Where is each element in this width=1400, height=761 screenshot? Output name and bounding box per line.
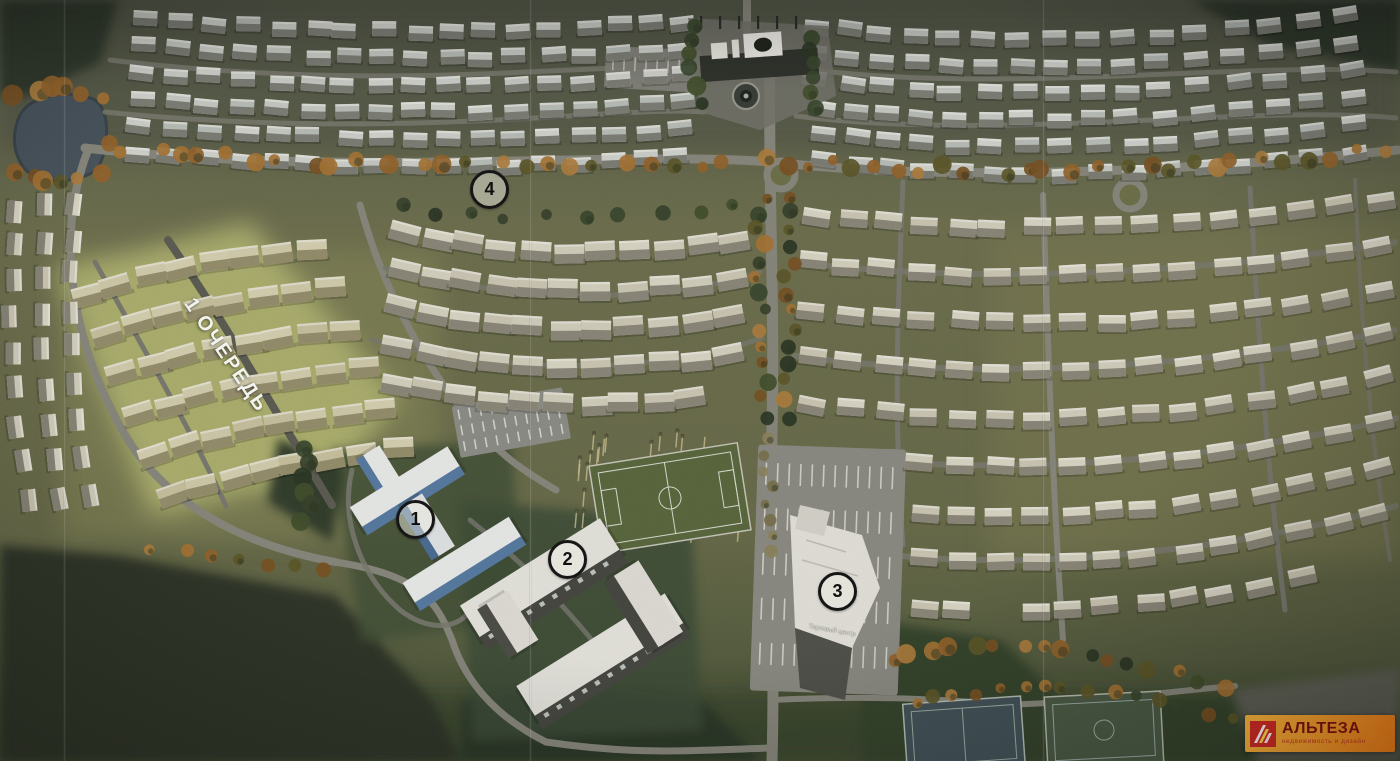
poi-marker-2: 2 — [548, 540, 587, 579]
photo-grain — [0, 0, 1400, 761]
altesa-tagline-text: недвижимость и дизайн — [1282, 739, 1366, 746]
poi-marker-4: 4 — [470, 170, 509, 209]
altesa-brand-text: АЛЬТЕЗА — [1282, 721, 1366, 737]
masterplan-photo: 1 ОЧЕРЕДЬ 1234 Торговый центр АЛЬТЕЗА не… — [0, 0, 1400, 761]
altesa-logo: АЛЬТЕЗА недвижимость и дизайн — [1245, 715, 1395, 752]
poi-marker-3: 3 — [818, 572, 857, 611]
altesa-logo-mark-icon — [1250, 721, 1276, 747]
site-plan-render — [0, 0, 1400, 761]
poi-marker-1: 1 — [396, 500, 435, 539]
